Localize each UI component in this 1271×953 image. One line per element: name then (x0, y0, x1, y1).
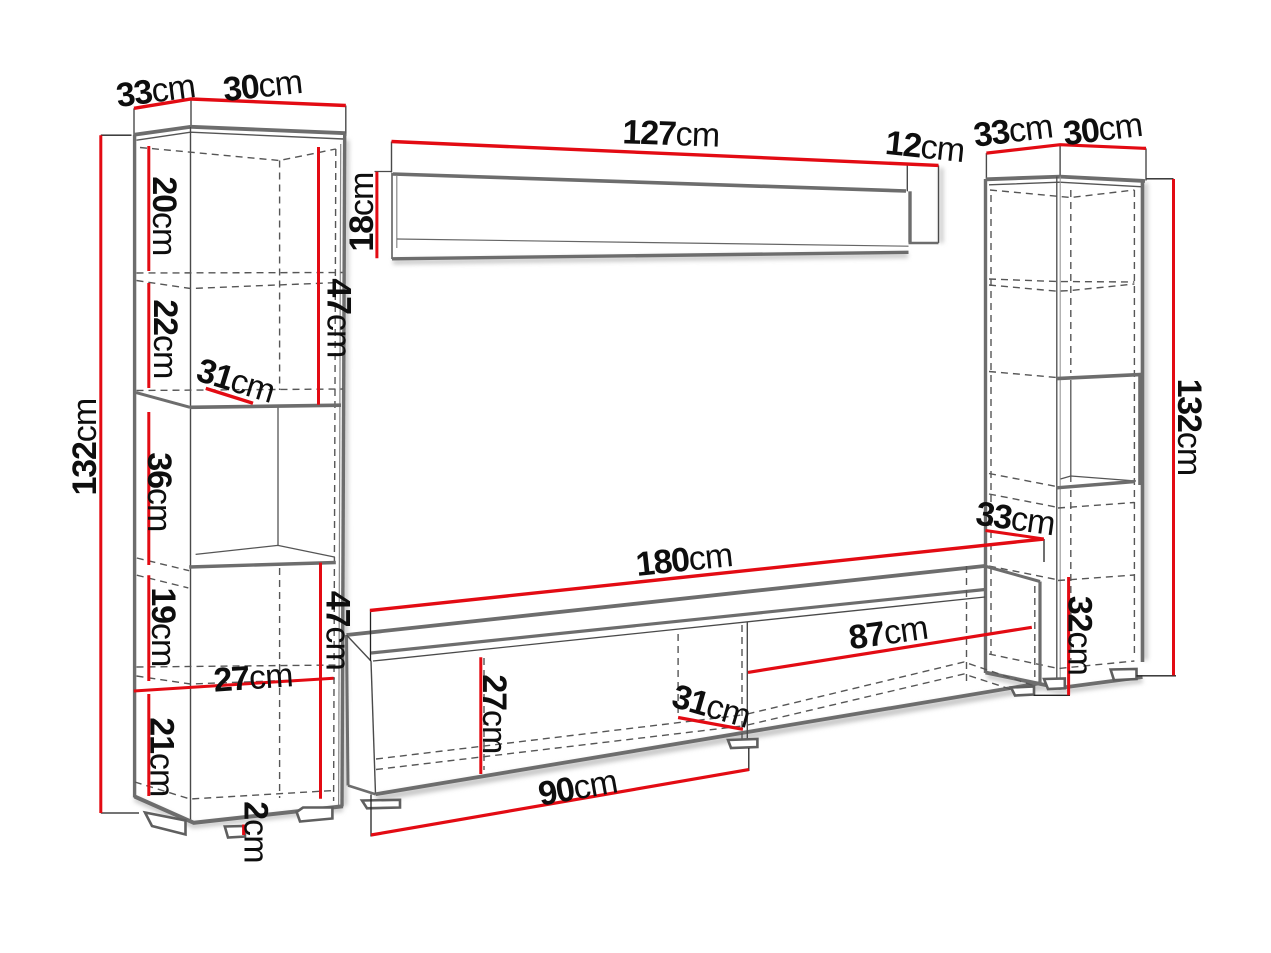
svg-text:180cm: 180cm (634, 536, 734, 584)
svg-text:31cm: 31cm (192, 351, 279, 410)
svg-text:2cm: 2cm (237, 801, 275, 862)
svg-text:47cm: 47cm (319, 591, 357, 670)
svg-text:21cm: 21cm (143, 717, 181, 796)
svg-text:127cm: 127cm (622, 113, 720, 154)
svg-text:27cm: 27cm (212, 656, 294, 699)
svg-text:27cm: 27cm (475, 674, 513, 753)
svg-text:19cm: 19cm (144, 587, 182, 666)
svg-text:132cm: 132cm (1170, 379, 1208, 476)
svg-text:33cm: 33cm (114, 67, 197, 115)
svg-text:32cm: 32cm (1061, 596, 1099, 675)
svg-text:30cm: 30cm (1061, 106, 1144, 153)
svg-text:132cm: 132cm (66, 399, 104, 496)
svg-text:87cm: 87cm (846, 609, 930, 658)
svg-text:18cm: 18cm (343, 172, 381, 251)
svg-text:47cm: 47cm (320, 278, 358, 357)
svg-text:20cm: 20cm (145, 176, 183, 255)
svg-text:36cm: 36cm (140, 452, 178, 531)
svg-text:22cm: 22cm (146, 299, 184, 378)
